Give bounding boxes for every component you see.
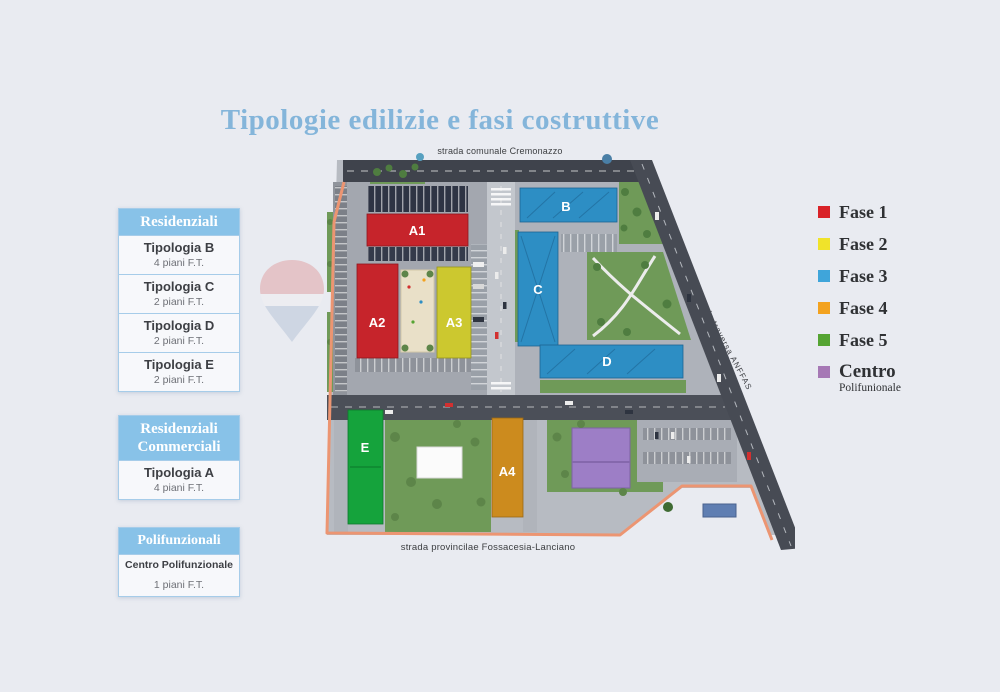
fase4-color-swatch bbox=[818, 302, 830, 314]
typology-panel-residenziali-commerciali: Residenziali Commerciali Tipologia A 4 p… bbox=[118, 415, 240, 500]
typology-row-c: Tipologia C 2 piani F.T. bbox=[119, 274, 239, 313]
legend-item-fase4: Fase 4 bbox=[818, 298, 901, 320]
label-a4: A4 bbox=[499, 464, 516, 479]
typology-row-centro: Centro Polifunzionale 1 piani F.T. bbox=[119, 554, 239, 596]
fase3-color-swatch bbox=[818, 270, 830, 282]
typology-row-b: Tipologia B 4 piani F.T. bbox=[119, 235, 239, 274]
site-plan-map: A1 A2 A3 B C D E A4 bbox=[325, 152, 795, 550]
panel-header: Residenziali Commerciali bbox=[119, 416, 239, 460]
label-b: B bbox=[561, 199, 570, 214]
watermark-pin-logo bbox=[252, 258, 332, 344]
typology-panel-polifunzionali: Polifunzionali Centro Polifunzionale 1 p… bbox=[118, 527, 240, 597]
panel-header: Residenziali bbox=[119, 209, 239, 235]
legend-sublabel: Polifunionale bbox=[839, 382, 901, 395]
typology-floors: 4 piani F.T. bbox=[121, 482, 237, 494]
tree-boundary bbox=[663, 502, 673, 512]
building-small-blue bbox=[703, 504, 736, 517]
legend-item-fase5: Fase 5 bbox=[818, 330, 901, 352]
typology-name: Centro Polifunzionale bbox=[121, 559, 237, 571]
typology-floors: 4 piani F.T. bbox=[121, 257, 237, 269]
typology-row-e: Tipologia E 2 piani F.T. bbox=[119, 352, 239, 391]
phase-legend: Fase 1 Fase 2 Fase 3 Fase 4 Fase 5 Centr… bbox=[818, 202, 901, 405]
typology-row-a: Tipologia A 4 piani F.T. bbox=[119, 460, 239, 499]
legend-item-fase2: Fase 2 bbox=[818, 234, 901, 256]
page-title: Tipologie edilizie e fasi costruttive bbox=[190, 104, 690, 137]
typology-row-d: Tipologia D 2 piani F.T. bbox=[119, 313, 239, 352]
typology-floors: 2 piani F.T. bbox=[121, 296, 237, 308]
typology-floors: 2 piani F.T. bbox=[121, 335, 237, 347]
typology-name: Tipologia A bbox=[121, 465, 237, 480]
fase2-color-swatch bbox=[818, 238, 830, 250]
legend-item-centro: Centro Polifunionale bbox=[818, 362, 901, 395]
legend-label: Fase 1 bbox=[839, 202, 888, 222]
typology-name: Tipologia B bbox=[121, 240, 237, 255]
label-a1: A1 bbox=[409, 223, 426, 238]
label-a2: A2 bbox=[369, 315, 386, 330]
legend-label: Fase 5 bbox=[839, 330, 888, 350]
panel-header: Polifunzionali bbox=[119, 528, 239, 554]
building-a2 bbox=[357, 264, 398, 358]
label-e: E bbox=[361, 440, 370, 455]
legend-label: Fase 3 bbox=[839, 266, 888, 286]
label-a3: A3 bbox=[446, 315, 463, 330]
legend-label: Fase 4 bbox=[839, 298, 888, 318]
building-a3 bbox=[437, 267, 471, 358]
label-d: D bbox=[602, 354, 611, 369]
typology-floors: 1 piani F.T. bbox=[121, 579, 237, 591]
fase1-color-swatch bbox=[818, 206, 830, 218]
building-white bbox=[417, 447, 462, 478]
typology-name: Tipologia E bbox=[121, 357, 237, 372]
building-centro-polifunzionale bbox=[572, 428, 630, 488]
typology-floors: 2 piani F.T. bbox=[121, 374, 237, 386]
legend-item-fase3: Fase 3 bbox=[818, 266, 901, 288]
lane-south-west bbox=[334, 420, 348, 532]
lane-south-center bbox=[523, 420, 537, 532]
legend-label: Fase 2 bbox=[839, 234, 888, 254]
typology-panel-residenziali: Residenziali Tipologia B 4 piani F.T. Ti… bbox=[118, 208, 240, 392]
legend-label: Centro bbox=[839, 362, 901, 382]
legend-item-fase1: Fase 1 bbox=[818, 202, 901, 224]
label-c: C bbox=[533, 282, 543, 297]
typology-name: Tipologia D bbox=[121, 318, 237, 333]
fase5-color-swatch bbox=[818, 334, 830, 346]
site-plan-svg: A1 A2 A3 B C D E A4 bbox=[325, 152, 795, 550]
typology-name: Tipologia C bbox=[121, 279, 237, 294]
playground bbox=[401, 270, 434, 352]
centro-color-swatch bbox=[818, 366, 830, 378]
